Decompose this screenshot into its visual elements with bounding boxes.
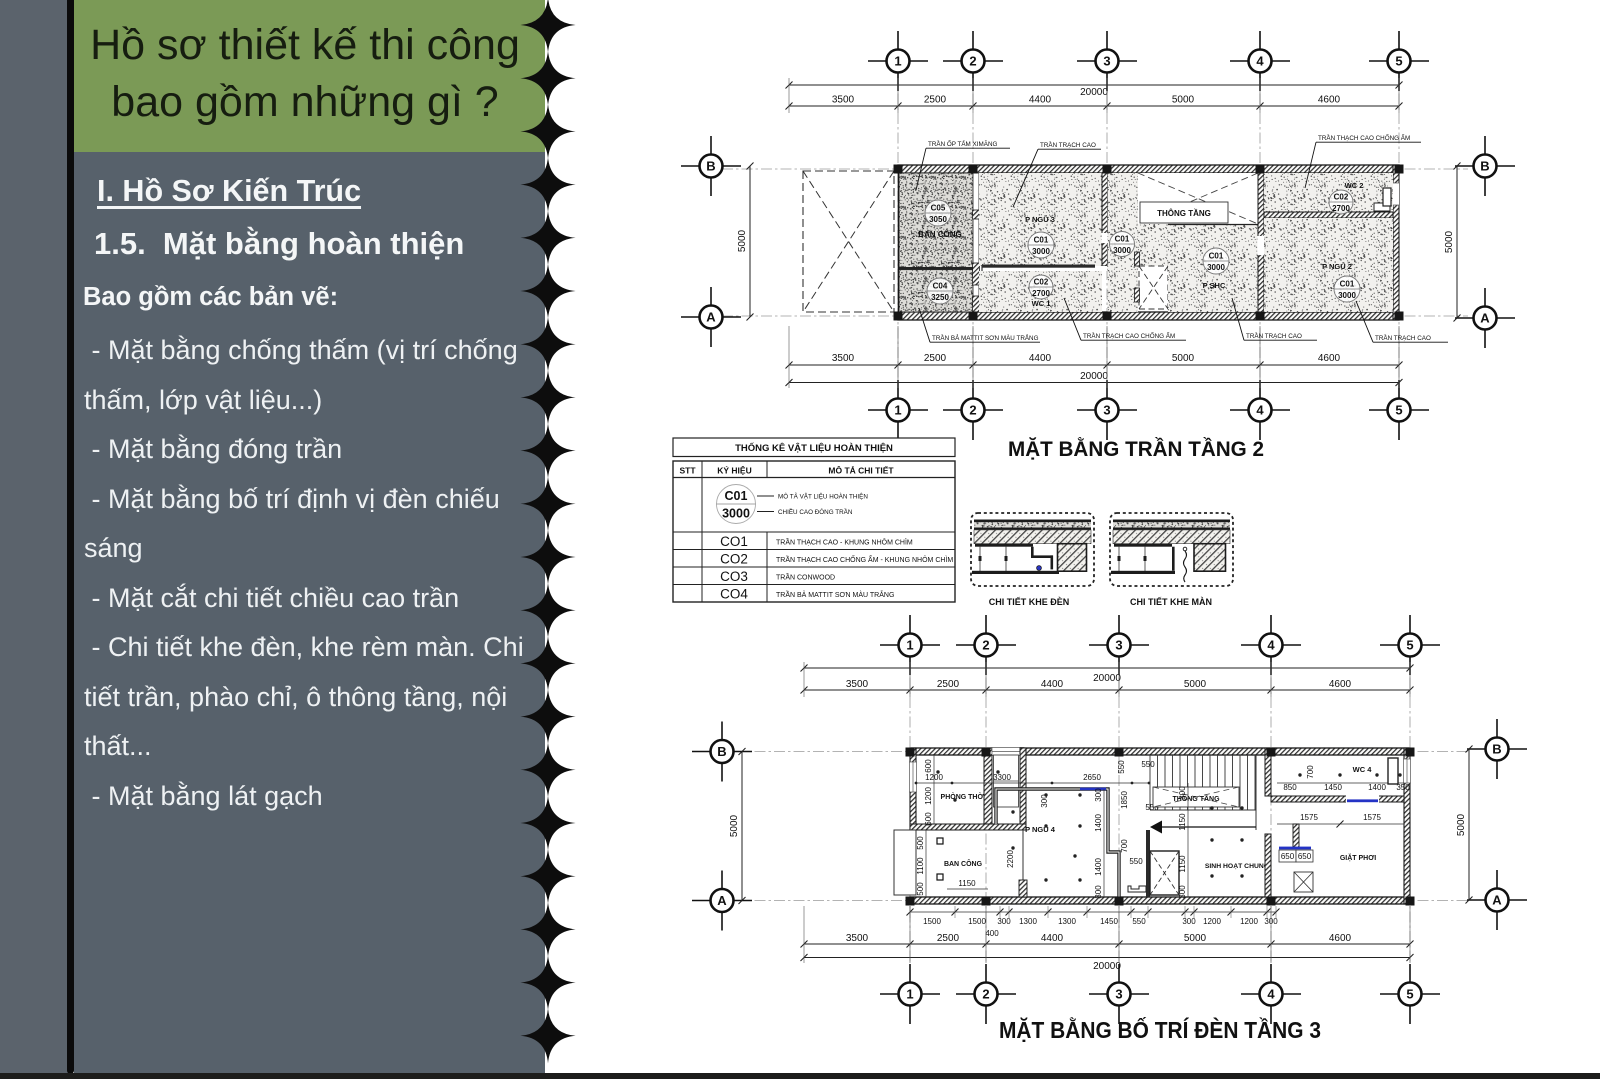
svg-text:300: 300 [1094, 788, 1103, 802]
svg-text:5: 5 [1406, 638, 1413, 653]
svg-text:3050: 3050 [929, 215, 947, 224]
svg-text:20000: 20000 [1093, 673, 1121, 684]
svg-text:THÔNG TẦNG: THÔNG TẦNG [1157, 208, 1211, 218]
svg-text:THỐNG KÊ VẬT LIỆU HOÀN THIỆN: THỐNG KÊ VẬT LIỆU HOÀN THIỆN [735, 442, 893, 454]
svg-text:5000: 5000 [729, 814, 740, 837]
svg-text:20000: 20000 [1080, 371, 1108, 382]
svg-text:5000: 5000 [1444, 230, 1455, 253]
svg-text:1: 1 [906, 638, 913, 653]
svg-text:C02: C02 [1034, 278, 1049, 287]
svg-text:5000: 5000 [1184, 933, 1207, 944]
svg-text:4: 4 [1256, 54, 1264, 69]
svg-text:4600: 4600 [1318, 95, 1341, 106]
svg-text:20000: 20000 [1093, 961, 1121, 972]
svg-text:1850: 1850 [1120, 791, 1129, 809]
svg-text:5: 5 [1406, 987, 1413, 1002]
svg-text:650: 650 [1298, 852, 1312, 861]
svg-text:P NGỦ 4: P NGỦ 4 [1025, 825, 1056, 834]
svg-text:2: 2 [969, 54, 976, 69]
svg-text:MẶT BẰNG TRẦN TẦNG 2: MẶT BẰNG TRẦN TẦNG 2 [1008, 436, 1264, 461]
svg-text:P SHC: P SHC [1203, 281, 1226, 290]
svg-text:500: 500 [916, 882, 925, 896]
svg-text:2: 2 [982, 987, 989, 1002]
svg-text:TRẦN THẠCH CAO CHỐNG ẨM: TRẦN THẠCH CAO CHỐNG ẨM [1318, 132, 1410, 142]
svg-text:1300: 1300 [1058, 917, 1076, 926]
svg-text:B: B [1480, 159, 1489, 174]
svg-text:2: 2 [982, 638, 989, 653]
svg-text:3000: 3000 [722, 507, 750, 521]
svg-text:A: A [717, 893, 727, 908]
svg-text:TRẦN TRẠCH CAO: TRẦN TRẠCH CAO [1040, 139, 1096, 149]
svg-text:C05: C05 [931, 204, 946, 213]
svg-text:4: 4 [1256, 403, 1264, 418]
svg-text:CO4: CO4 [720, 587, 748, 602]
svg-text:3500: 3500 [832, 95, 855, 106]
svg-text:1: 1 [894, 403, 901, 418]
svg-text:3000: 3000 [1032, 247, 1050, 256]
svg-text:2500: 2500 [924, 353, 947, 364]
svg-text:1300: 1300 [1019, 917, 1037, 926]
svg-text:C04: C04 [933, 282, 948, 291]
svg-text:300: 300 [1178, 885, 1187, 899]
svg-text:4600: 4600 [1329, 679, 1352, 690]
svg-text:B: B [706, 159, 715, 174]
svg-text:MÔ TẢ CHI TIẾT: MÔ TẢ CHI TIẾT [828, 465, 894, 476]
svg-text:4600: 4600 [1318, 353, 1341, 364]
svg-text:2500: 2500 [924, 95, 947, 106]
svg-text:4400: 4400 [1041, 933, 1064, 944]
svg-text:4: 4 [1267, 638, 1275, 653]
svg-text:550: 550 [1141, 760, 1155, 769]
svg-text:WC 2: WC 2 [1345, 181, 1364, 190]
svg-text:CO1: CO1 [720, 534, 748, 549]
svg-text:TRẦN TRẠCH CAO: TRẦN TRẠCH CAO [1375, 332, 1431, 342]
svg-text:3: 3 [1115, 987, 1122, 1002]
svg-text:2200: 2200 [1006, 850, 1015, 868]
svg-text:A: A [1480, 311, 1490, 326]
svg-text:5: 5 [1395, 403, 1402, 418]
svg-text:3000: 3000 [1113, 246, 1131, 255]
svg-text:1500: 1500 [923, 917, 941, 926]
svg-text:4400: 4400 [1029, 353, 1052, 364]
svg-text:550: 550 [1117, 760, 1126, 774]
svg-text:600: 600 [924, 812, 933, 826]
svg-text:BAN CÔNG: BAN CÔNG [918, 230, 962, 239]
svg-text:4400: 4400 [1029, 95, 1052, 106]
svg-text:SINH HOẠT CHUNG: SINH HOẠT CHUNG [1205, 863, 1269, 870]
svg-text:300: 300 [1094, 885, 1103, 899]
svg-text:1450: 1450 [1100, 917, 1118, 926]
svg-text:TRẦN BẢ MATTIT SƠN MÀU TRẮNG: TRẦN BẢ MATTIT SƠN MÀU TRẮNG [932, 332, 1039, 342]
svg-text:1575: 1575 [1363, 813, 1381, 822]
svg-text:1100: 1100 [916, 857, 925, 875]
svg-text:4: 4 [1267, 987, 1275, 1002]
svg-text:600: 600 [924, 759, 933, 773]
svg-text:1150: 1150 [958, 879, 976, 888]
svg-text:3500: 3500 [846, 679, 869, 690]
svg-text:300: 300 [1178, 786, 1187, 800]
svg-text:CO2: CO2 [720, 552, 748, 567]
svg-text:550: 550 [1129, 857, 1143, 866]
svg-text:5: 5 [1395, 54, 1402, 69]
svg-text:C01: C01 [1034, 236, 1049, 245]
svg-text:1450: 1450 [1324, 783, 1342, 792]
svg-text:2500: 2500 [937, 679, 960, 690]
svg-text:300: 300 [997, 917, 1011, 926]
svg-text:300: 300 [1040, 794, 1049, 808]
svg-text:4400: 4400 [1041, 679, 1064, 690]
svg-text:4600: 4600 [1329, 933, 1352, 944]
svg-text:5000: 5000 [1184, 679, 1207, 690]
svg-text:2: 2 [969, 403, 976, 418]
svg-text:5000: 5000 [1456, 813, 1467, 836]
svg-text:GIẶT PHƠI: GIẶT PHƠI [1340, 853, 1376, 862]
svg-text:3250: 3250 [931, 293, 949, 302]
svg-text:P NGỦ 3: P NGỦ 3 [1025, 215, 1055, 224]
svg-text:C01: C01 [1115, 235, 1130, 244]
svg-text:5000: 5000 [737, 229, 748, 252]
svg-text:TRẦN TRẠCH CAO: TRẦN TRẠCH CAO [1246, 330, 1302, 340]
svg-text:1150: 1150 [1178, 855, 1187, 873]
svg-text:700: 700 [1120, 839, 1129, 853]
svg-text:1200: 1200 [1240, 917, 1258, 926]
svg-text:3500: 3500 [846, 933, 869, 944]
svg-text:1200: 1200 [924, 787, 933, 805]
svg-text:850: 850 [1283, 783, 1297, 792]
svg-text:1400: 1400 [1094, 814, 1103, 832]
svg-text:CO3: CO3 [720, 569, 748, 584]
svg-text:C01: C01 [725, 489, 748, 503]
svg-text:C01: C01 [1209, 252, 1224, 261]
svg-text:TRẦN ỐP TẤM XIMĂNG: TRẦN ỐP TẤM XIMĂNG [928, 138, 997, 148]
svg-text:3500: 3500 [832, 353, 855, 364]
svg-text:C02: C02 [1334, 193, 1349, 202]
svg-text:P NGỦ 2: P NGỦ 2 [1322, 262, 1352, 271]
svg-text:650: 650 [1281, 852, 1295, 861]
svg-text:5000: 5000 [1172, 353, 1195, 364]
svg-text:300: 300 [1182, 917, 1196, 926]
svg-text:500: 500 [916, 836, 925, 850]
svg-text:KÝ HIỆU: KÝ HIỆU [717, 465, 751, 476]
svg-text:1500: 1500 [968, 917, 986, 926]
svg-text:1: 1 [906, 987, 913, 1002]
svg-text:MÔ TẢ VẬT LIỆU HOÀN THIỆN: MÔ TẢ VẬT LIỆU HOÀN THIỆN [778, 492, 868, 501]
svg-text:A: A [706, 310, 716, 325]
svg-text:B: B [717, 744, 726, 759]
svg-text:2650: 2650 [1083, 773, 1101, 782]
svg-text:TRẦN TRẠCH CAO CHỐNG ẨM: TRẦN TRẠCH CAO CHỐNG ẨM [1083, 330, 1175, 340]
svg-text:2700: 2700 [1032, 289, 1050, 298]
svg-text:1200: 1200 [1203, 917, 1221, 926]
svg-text:B: B [1492, 742, 1501, 757]
svg-text:CHI TIẾT KHE MÀN: CHI TIẾT KHE MÀN [1130, 597, 1212, 607]
svg-text:700: 700 [1306, 765, 1315, 779]
svg-text:WC 4: WC 4 [1353, 765, 1373, 774]
svg-text:1: 1 [894, 54, 901, 69]
svg-text:5000: 5000 [1172, 95, 1195, 106]
svg-text:3300: 3300 [993, 773, 1011, 782]
svg-text:3: 3 [1103, 403, 1110, 418]
svg-text:CHI TIẾT KHE ĐÈN: CHI TIẾT KHE ĐÈN [989, 597, 1070, 607]
svg-text:20000: 20000 [1080, 87, 1108, 98]
svg-text:3: 3 [1115, 638, 1122, 653]
svg-text:550: 550 [1132, 917, 1146, 926]
svg-text:1150: 1150 [1178, 813, 1187, 831]
svg-text:1575: 1575 [1300, 813, 1318, 822]
svg-text:PHÒNG THỜ: PHÒNG THỜ [941, 792, 984, 801]
svg-text:1400: 1400 [1094, 858, 1103, 876]
svg-text:STT: STT [679, 466, 696, 476]
svg-text:BAN CÔNG: BAN CÔNG [944, 859, 983, 868]
svg-text:A: A [1492, 893, 1502, 908]
svg-text:MẶT BẰNG BỐ TRÍ ĐÈN TẦNG 3: MẶT BẰNG BỐ TRÍ ĐÈN TẦNG 3 [999, 1016, 1321, 1043]
svg-text:3: 3 [1103, 54, 1110, 69]
svg-text:2700: 2700 [1332, 204, 1350, 213]
svg-text:C01: C01 [1340, 280, 1355, 289]
svg-text:400: 400 [985, 929, 999, 938]
svg-text:WC 1: WC 1 [1032, 299, 1051, 308]
svg-text:1400: 1400 [1368, 783, 1386, 792]
svg-text:3000: 3000 [1338, 291, 1356, 300]
svg-text:3000: 3000 [1207, 263, 1225, 272]
svg-text:2500: 2500 [937, 933, 960, 944]
